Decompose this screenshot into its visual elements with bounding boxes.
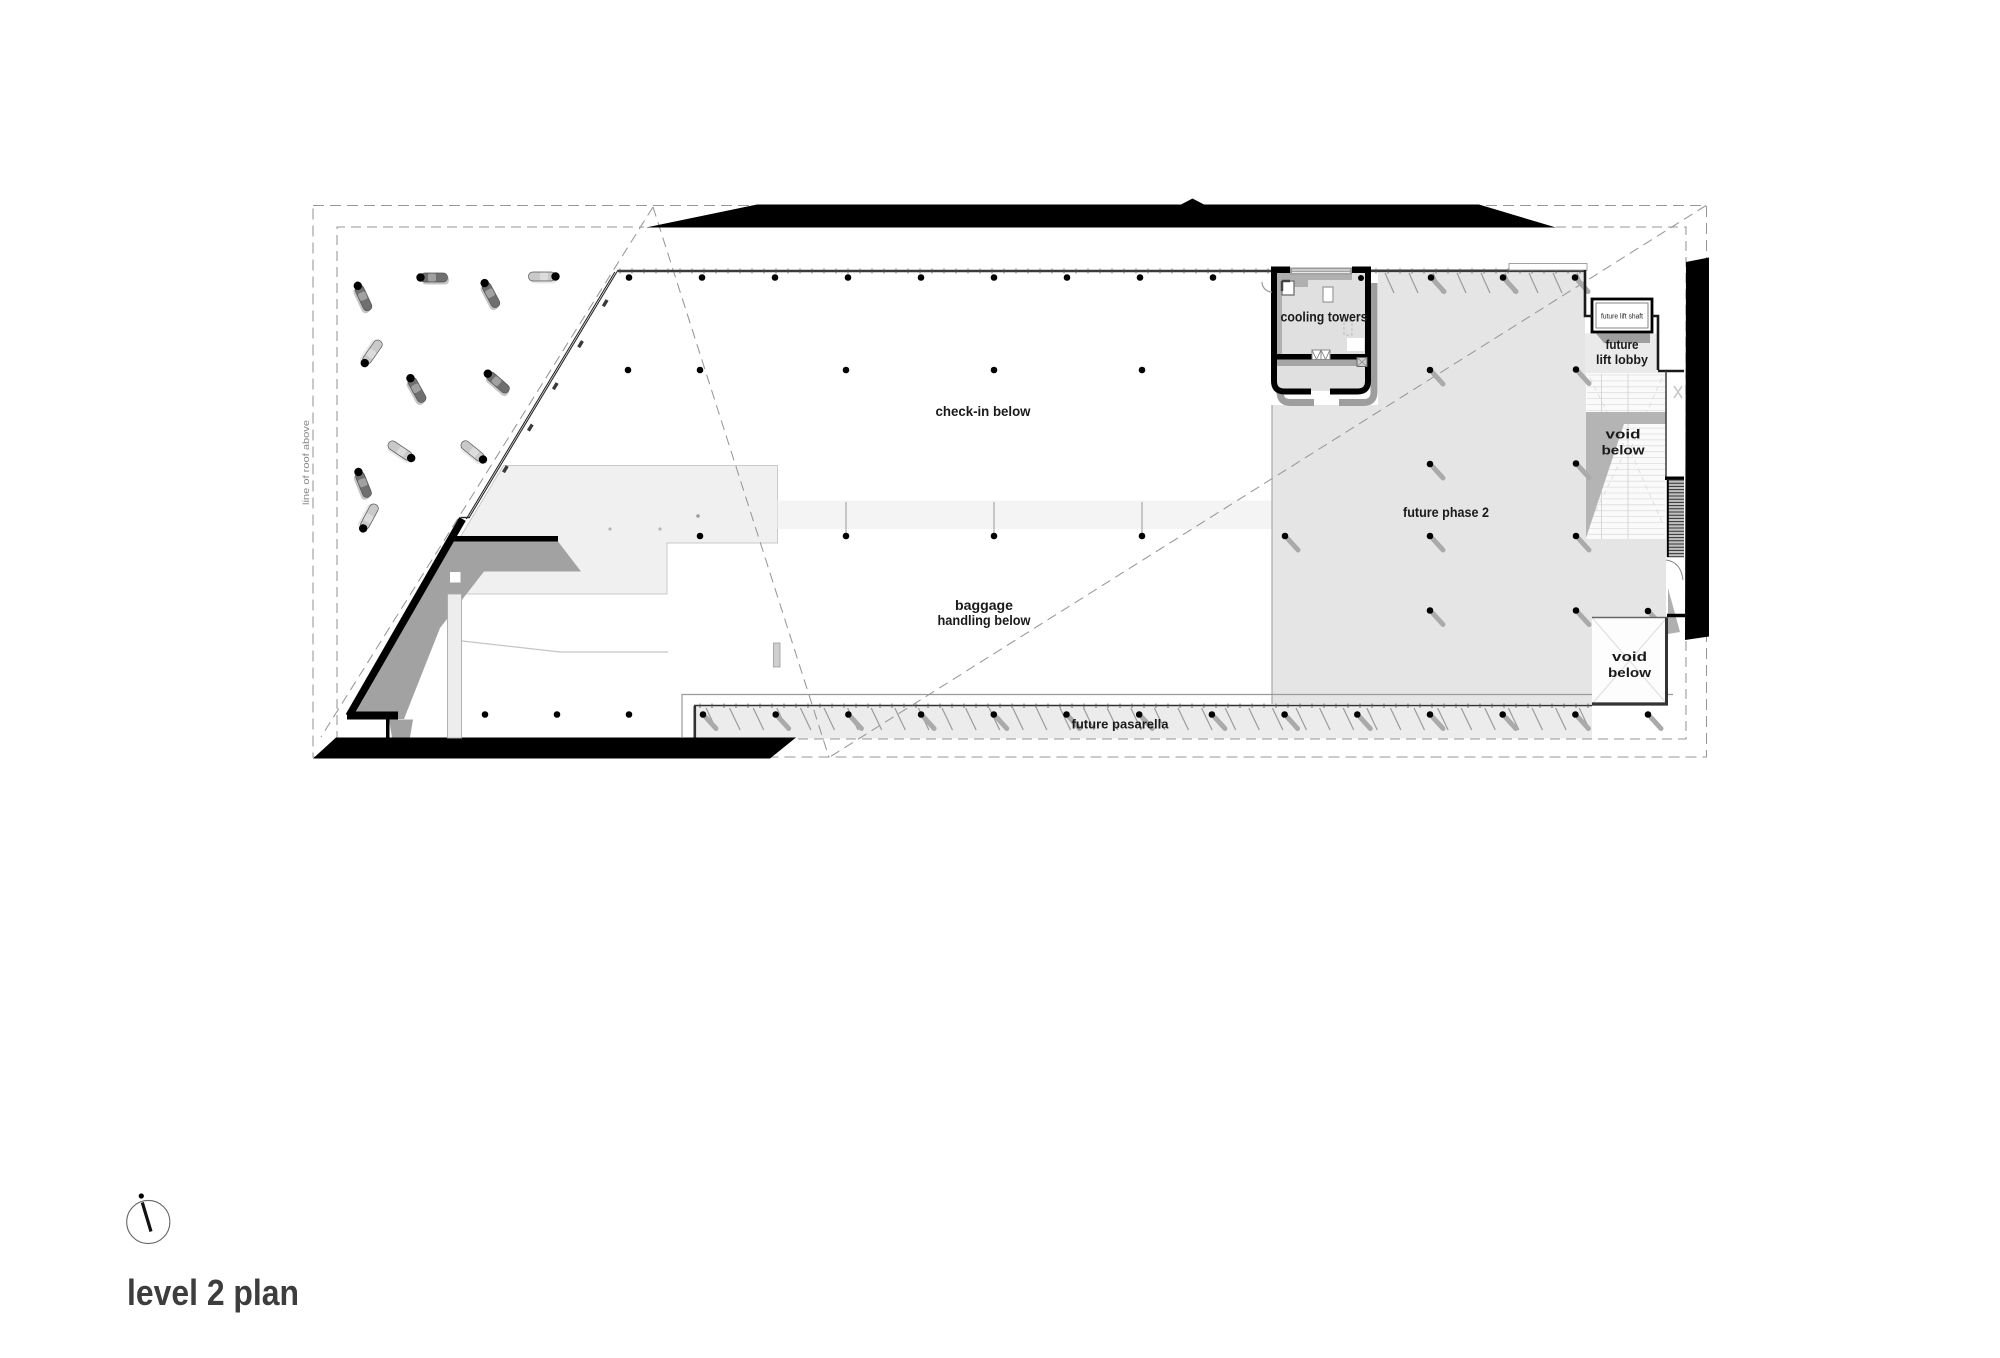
svg-text:future phase 2: future phase 2	[1403, 505, 1489, 520]
svg-text:level 2 plan: level 2 plan	[127, 1272, 299, 1313]
svg-text:line of roof above: line of roof above	[301, 420, 311, 505]
svg-text:lift lobby: lift lobby	[1596, 353, 1648, 367]
svg-text:future pasarella: future pasarella	[1072, 717, 1170, 732]
svg-text:baggage: baggage	[955, 598, 1014, 613]
svg-text:below: below	[1608, 666, 1651, 680]
svg-text:cooling towers: cooling towers	[1281, 310, 1368, 325]
svg-text:void: void	[1612, 650, 1647, 664]
svg-text:below: below	[1602, 444, 1645, 458]
svg-text:handling below: handling below	[938, 613, 1031, 628]
svg-text:future lift shaft: future lift shaft	[1601, 314, 1643, 321]
svg-text:check-in below: check-in below	[936, 404, 1031, 419]
svg-text:void: void	[1606, 428, 1641, 442]
svg-text:future: future	[1606, 338, 1639, 352]
